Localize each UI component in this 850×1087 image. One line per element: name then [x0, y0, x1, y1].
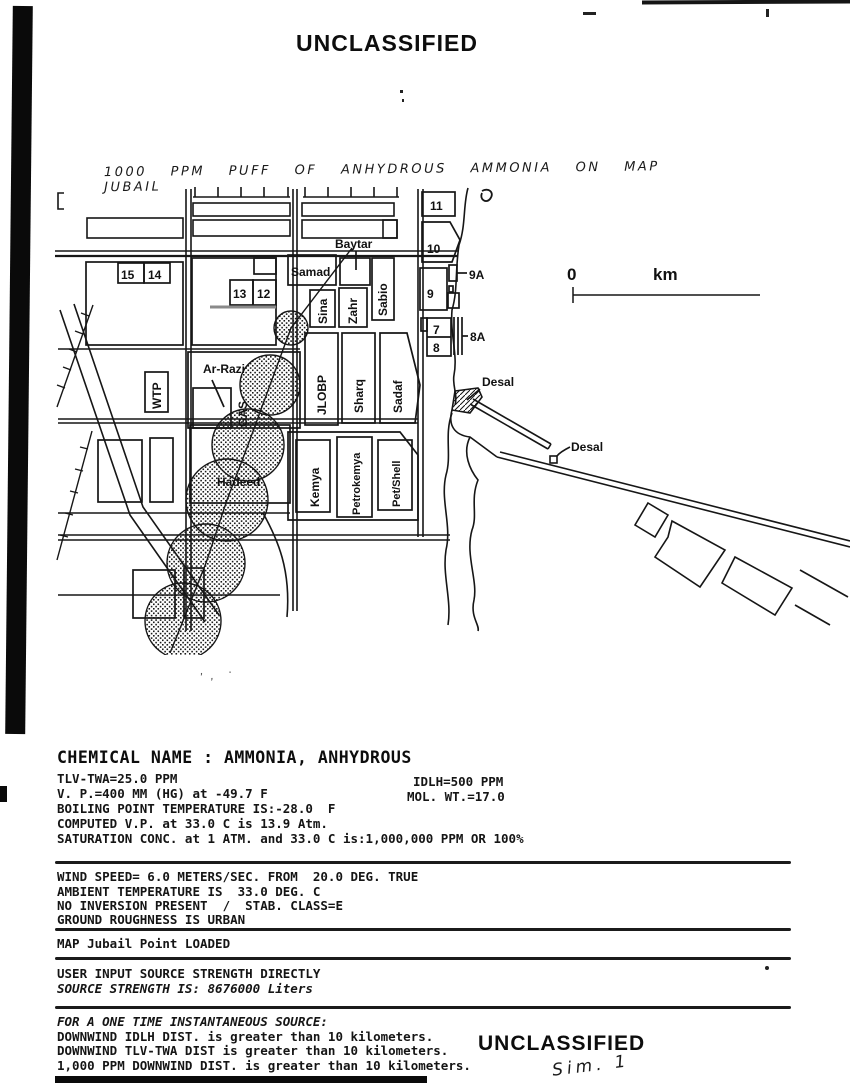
map-loaded-status: MAP Jubail Point LOADED: [57, 936, 230, 951]
label-gas: GAS: [236, 401, 250, 427]
result-1000ppm-distance: 1,000 PPM DOWNWIND DIST. is greater than…: [57, 1058, 471, 1073]
prop-tlv-twa: TLV-TWA=25.0 PPM: [57, 771, 177, 786]
top-cut-blocks: [58, 187, 399, 238]
label-block-13: 13: [233, 287, 247, 301]
label-zahr: Zahr: [346, 298, 360, 324]
label-petrokemya: Petrokemya: [351, 452, 363, 515]
prop-idlh: IDLH=500 PPM: [413, 774, 503, 789]
scan-artifact-nub: [0, 786, 7, 802]
result-tlv-twa-distance: DOWNWIND TLV-TWA DIST is greater than 10…: [57, 1043, 448, 1058]
scale-zero-label: 0: [567, 265, 576, 284]
label-sabio: Sabio: [376, 283, 390, 316]
prop-boiling-point: BOILING POINT TEMPERATURE IS:-28.0 F: [57, 801, 335, 816]
scan-speck: [402, 99, 404, 102]
label-jlobp: JLOBP: [315, 375, 329, 415]
chemical-name-header: CHEMICAL NAME : AMMONIA, ANHYDROUS: [57, 748, 412, 767]
label-ar-razi: Ar-Razi: [203, 362, 245, 376]
scan-speck: [766, 9, 769, 17]
prop-saturation-conc: SATURATION CONC. at 1 ATM. and 33.0 C is…: [57, 831, 524, 846]
scan-speck: [765, 966, 769, 970]
prop-vapor-pressure: V. P.=400 MM (HG) at -49.7 F: [57, 786, 268, 801]
label-block-11: 11: [430, 199, 443, 213]
label-kemya: Kemya: [308, 467, 322, 507]
scan-speck: [400, 90, 403, 93]
scan-speck: [583, 12, 596, 15]
classification-banner-top: UNCLASSIFIED: [296, 30, 478, 57]
label-hadeed: Hadeed: [217, 475, 260, 489]
cond-wind-speed: WIND SPEED= 6.0 METERS/SEC. FROM 20.0 DE…: [57, 869, 418, 884]
section-divider: [55, 1006, 791, 1009]
section-divider: [55, 957, 791, 960]
label-samad: Samad: [291, 265, 330, 279]
section-divider: [55, 861, 791, 864]
puff-circle-6: [145, 583, 221, 655]
label-desal-north: Desal: [482, 375, 514, 389]
label-sharq: Sharq: [352, 379, 366, 413]
scanned-report-page: UNCLASSIFIED UNCLASSIFIED 1000 PPM PUFF …: [0, 0, 850, 1087]
label-sadaf: Sadaf: [391, 379, 405, 413]
label-block-7: 7: [433, 323, 440, 337]
scan-artifact-bottom-bar: [55, 1076, 427, 1083]
cond-inversion: NO INVERSION PRESENT / STAB. CLASS=E: [57, 898, 343, 913]
coastline: [444, 188, 850, 631]
cond-ground-roughness: GROUND ROUGHNESS IS URBAN: [57, 912, 245, 927]
label-block-12: 12: [257, 287, 271, 301]
label-block-8a: 8A: [470, 330, 486, 344]
map-scale-bar: 0 km: [567, 265, 760, 303]
cond-ambient-temp: AMBIENT TEMPERATURE IS 33.0 DEG. C: [57, 884, 320, 899]
label-block-10: 10: [427, 242, 441, 256]
results-header: FOR A ONE TIME INSTANTANEOUS SOURCE:: [57, 1014, 328, 1029]
prop-mol-wt: MOL. WT.=17.0: [407, 789, 505, 804]
label-sina: Sina: [316, 298, 330, 324]
label-block-14: 14: [148, 268, 162, 282]
label-pet-shell: Pet/Shell: [391, 461, 403, 507]
section-divider: [55, 928, 791, 931]
label-baytar: Baytar: [335, 237, 373, 251]
map-labels: Baytar Samad Sina Zahr Sabio JLOBP Sharq…: [121, 199, 603, 515]
puff-circle-1: [274, 311, 308, 345]
prop-computed-vp: COMPUTED V.P. at 33.0 C is 13.9 Atm.: [57, 816, 328, 831]
label-desal-south: Desal: [571, 440, 603, 454]
jubail-dispersion-map: 0 km Baytar Samad Sina Zahr Sabio JLOBP …: [0, 185, 850, 655]
label-block-9: 9: [427, 287, 434, 301]
numbered-blocks-right: [420, 192, 468, 356]
handwritten-smudge: ’, ·: [199, 665, 239, 684]
scan-artifact-top-streak: [642, 0, 850, 5]
scale-unit-label: km: [653, 265, 678, 284]
result-idlh-distance: DOWNWIND IDLH DIST. is greater than 10 k…: [57, 1029, 433, 1044]
label-block-8: 8: [433, 341, 440, 355]
label-block-15: 15: [121, 268, 135, 282]
label-block-9a: 9A: [469, 268, 485, 282]
source-strength: SOURCE STRENGTH IS: 8676000 Liters: [57, 981, 313, 996]
source-input-mode: USER INPUT SOURCE STRENGTH DIRECTLY: [57, 966, 320, 981]
label-wtp: WTP: [150, 382, 164, 409]
